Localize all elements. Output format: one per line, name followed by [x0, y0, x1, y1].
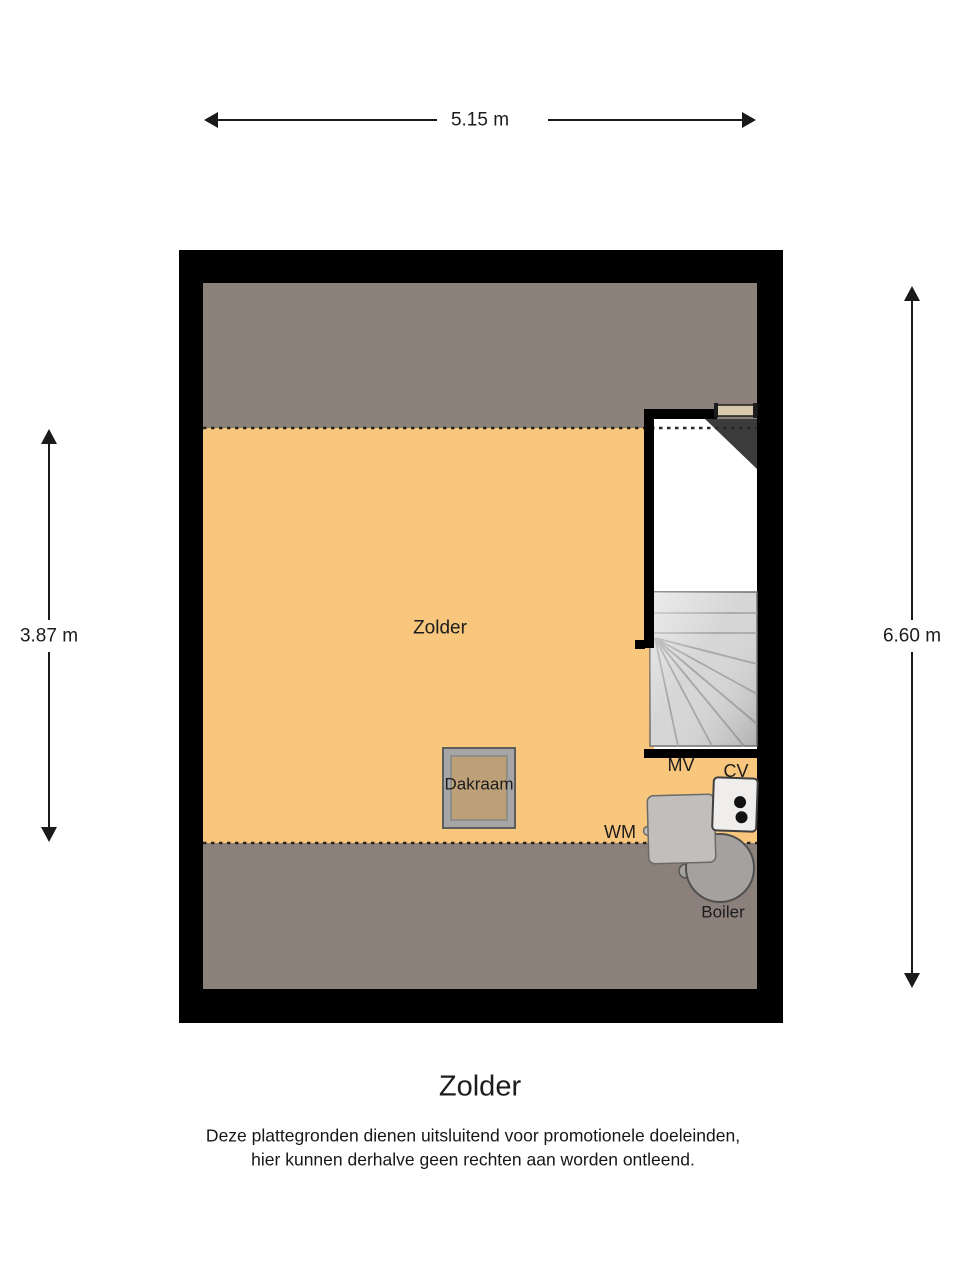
disclaimer-line-2: hier kunnen derhalve geen rechten aan wo… [251, 1151, 695, 1169]
wm-label: WM [604, 823, 636, 841]
stair-wall-bottom [644, 749, 757, 758]
stair-wall-left [644, 409, 654, 648]
boiler-label: Boiler [701, 904, 744, 921]
low-headroom-bottom [203, 843, 757, 989]
staircase [650, 592, 757, 746]
mv-label: MV [668, 756, 695, 774]
dim-top-arrowhead-left [204, 112, 218, 128]
room-label-zolder: Zolder [413, 619, 467, 638]
dim-left-arrowhead-bottom [41, 827, 57, 842]
dim-top-arrowhead-right [742, 112, 756, 128]
cv-label: CV [723, 762, 748, 780]
stair-wall-top [644, 409, 717, 419]
dimension-width-label: 5.15 m [448, 111, 512, 130]
dim-right-arrowhead-top [904, 286, 920, 301]
floorplan-page: 5.15 m 3.87 m 6.60 m Zolder Dakraam MV C… [0, 0, 960, 1280]
window-end-cap-left [714, 403, 718, 418]
dim-right-arrowhead-bottom [904, 973, 920, 988]
window-end-cap-right [753, 403, 757, 418]
stair-window [714, 403, 757, 418]
washing-machine-symbol [643, 794, 716, 864]
dimension-right-height-label: 6.60 m [880, 627, 944, 646]
low-headroom-top [203, 283, 757, 428]
stair-shading [650, 592, 757, 746]
dim-left-arrowhead-top [41, 429, 57, 444]
dimension-left-height-label: 3.87 m [17, 627, 81, 646]
floor-title: Zolder [439, 1073, 521, 1102]
window-bar [716, 405, 757, 416]
stair-wall-end-cap [635, 640, 645, 649]
disclaimer-line-1: Deze plattegronden dienen uitsluitend vo… [206, 1127, 740, 1145]
wm-body [647, 794, 716, 864]
dakraam-label: Dakraam [445, 776, 514, 793]
cv-unit-symbol [712, 777, 758, 832]
